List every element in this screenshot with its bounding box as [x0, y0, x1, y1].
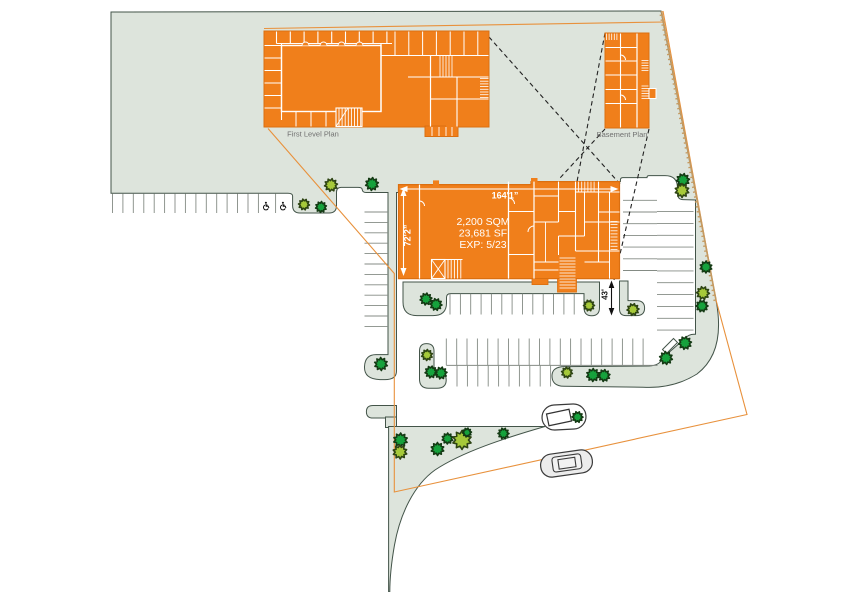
svg-text:164'1”: 164'1”	[492, 191, 519, 201]
svg-text:First Level Plan: First Level Plan	[287, 130, 339, 139]
svg-text:EXP: 5/23: EXP: 5/23	[459, 239, 506, 251]
svg-text:2,200 SQM: 2,200 SQM	[456, 216, 509, 228]
svg-text:72'2”: 72'2”	[403, 225, 413, 247]
svg-text:Basement Plan: Basement Plan	[597, 130, 648, 139]
svg-text:23,681 SF: 23,681 SF	[459, 228, 507, 240]
svg-text:43': 43'	[601, 289, 610, 300]
